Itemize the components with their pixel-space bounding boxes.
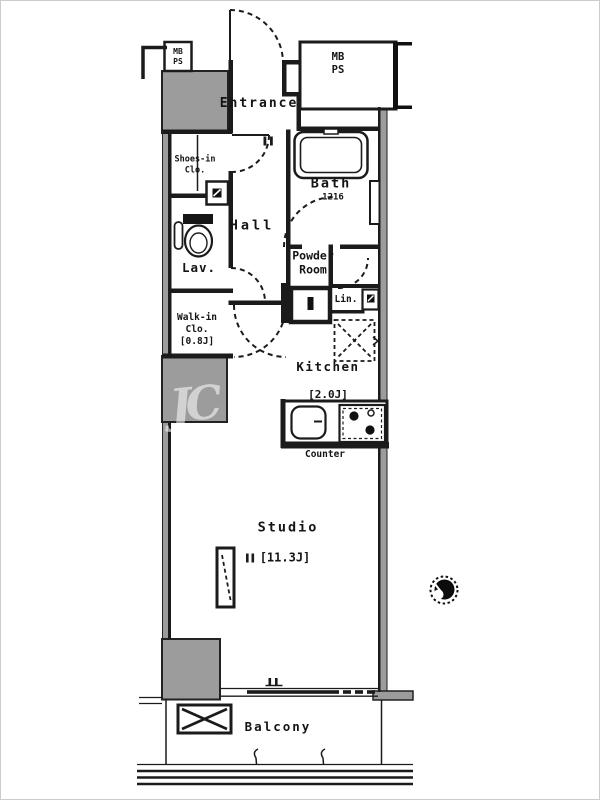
room-label-lavatory: Lav. bbox=[182, 260, 216, 276]
toilet-tank bbox=[183, 214, 213, 224]
room-label-bath-size: 1216 bbox=[322, 192, 344, 203]
room-label-linen: Lin. bbox=[335, 294, 358, 306]
entrance-step-marks bbox=[264, 137, 267, 146]
toilet-handle bbox=[175, 222, 183, 249]
hall-door-swing bbox=[232, 135, 269, 172]
room-label-studio-size: [11.3J] bbox=[260, 551, 311, 566]
meter-box-right bbox=[300, 42, 396, 109]
room-label-counter: Counter bbox=[305, 449, 345, 461]
room-label-kitchen: Kitchen bbox=[296, 359, 359, 375]
powder-door-swing bbox=[338, 258, 368, 288]
front-door-swing bbox=[230, 10, 283, 63]
bath-vent bbox=[370, 181, 380, 224]
watermark-logo: JC bbox=[167, 375, 219, 434]
room-label-powder-room: PowderRoom bbox=[292, 249, 334, 278]
room-label-bath: Bath bbox=[311, 176, 352, 193]
room-label-meter-box-left: MBPS bbox=[173, 47, 183, 67]
stove bbox=[340, 405, 386, 442]
floorplan-page: MBPS MBPS Entrance Shoes-inClo. Bath 121… bbox=[0, 0, 600, 800]
refrigerator-space bbox=[335, 320, 375, 361]
room-label-hall: Hall bbox=[230, 218, 275, 235]
room-label-studio: Studio bbox=[258, 520, 319, 537]
room-label-balcony: Balcony bbox=[245, 719, 312, 735]
room-label-shoes-closet: Shoes-inClo. bbox=[175, 154, 216, 175]
room-label-kitchen-size: [2.0J] bbox=[308, 388, 348, 402]
room-label-entrance: Entrance bbox=[220, 96, 299, 112]
lavatory-door-swing bbox=[231, 268, 265, 302]
bath-faucet bbox=[324, 129, 338, 134]
compass-icon bbox=[431, 577, 458, 604]
room-label-meter-box-right: MBPS bbox=[332, 51, 345, 77]
floorplan-drawing bbox=[1, 1, 600, 800]
bath-door-swing bbox=[284, 197, 334, 247]
room-label-walk-in-closet: Walk-inClo.[0.8J] bbox=[177, 312, 217, 348]
